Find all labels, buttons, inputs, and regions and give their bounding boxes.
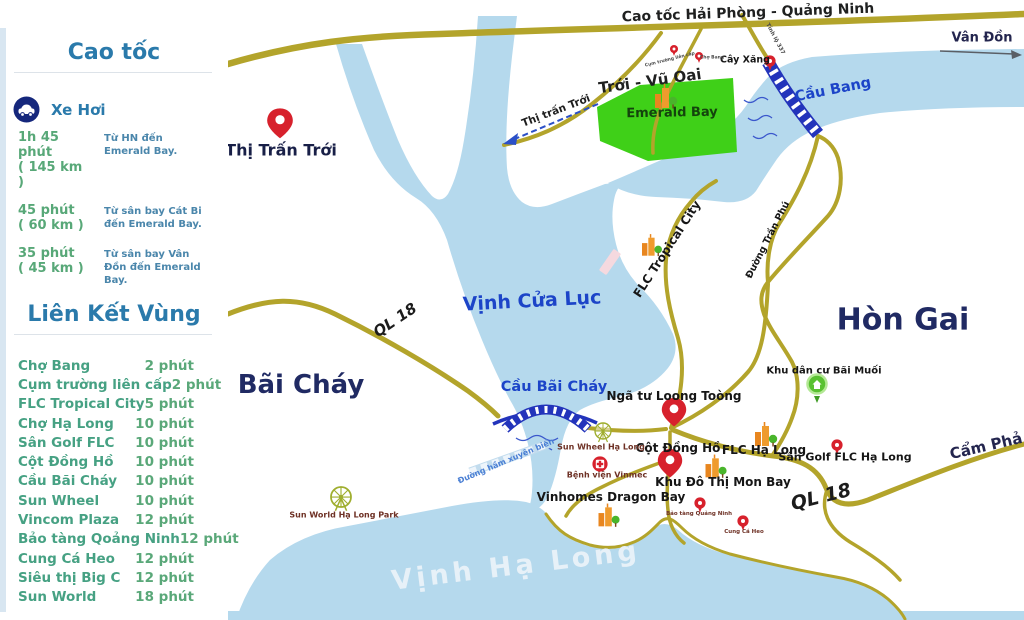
pin-thi-tran-troi <box>267 108 293 138</box>
region-link-name: Chợ Bang <box>18 358 90 374</box>
region-link-name: Cụm trường liên cấp <box>18 377 172 393</box>
region-link-time: 2 phút <box>145 358 194 374</box>
region-link-row: Cột Đồng Hồ10 phút <box>18 452 194 471</box>
region-link-row: Chợ Hạ Long10 phút <box>18 414 194 433</box>
house-pin-khu-dan-cu-bai-muoi <box>808 375 827 404</box>
region-link-row: Bảo tàng Qoảng Ninh12 phút <box>18 530 194 549</box>
region-link-row: FLC Tropical City5 phút <box>18 395 194 414</box>
region-link-time: 12 phút <box>180 531 239 547</box>
road-tran-phu-loop <box>768 136 841 282</box>
sidebar: Cao tốc Xe Hơi 1h 45 phút( 145 km )Từ HN… <box>0 0 228 620</box>
car-icon <box>13 96 40 123</box>
vinh-ha-long-water <box>236 500 906 620</box>
region-link-time: 2 phút <box>172 377 221 393</box>
trip-row: 35 phút( 45 km )Từ sân bay Vân Đồn đến E… <box>18 246 214 287</box>
road-loong-north <box>666 181 716 428</box>
region-link-time: 10 phút <box>135 454 194 470</box>
marker-san-golf <box>831 439 842 454</box>
pin-cot-dong-ho <box>658 449 682 478</box>
region-link-row: Chợ Bang2 phút <box>18 356 194 375</box>
car-mode-label: Xe Hơi <box>51 101 106 119</box>
divider <box>14 72 212 73</box>
trip-description: Từ HN đến Emerald Bay. <box>104 130 204 190</box>
region-link-name: Cung Cá Heo <box>18 551 115 567</box>
divider <box>14 334 212 335</box>
road-ql18-west <box>228 301 498 416</box>
region-link-row: Cụm trường liên cấp2 phút <box>18 375 194 394</box>
region-link-name: Cầu Bãi Cháy <box>18 473 117 489</box>
region-link-name: Chợ Hạ Long <box>18 416 114 432</box>
region-link-time: 10 phút <box>135 493 194 509</box>
buildings-flc-ha-long-icon <box>755 422 777 447</box>
marker-bao-tang-quang-ninh <box>694 497 705 512</box>
region-link-time: 10 phút <box>135 416 194 432</box>
location-map-page: Cao tốc Hải Phòng - Quảng NinhVân ĐồnTrớ… <box>0 0 1024 620</box>
region-link-time: 5 phút <box>145 396 194 412</box>
region-link-row: Sun Wheel10 phút <box>18 491 194 510</box>
region-link-time: 12 phút <box>135 512 194 528</box>
region-link-list: Chợ Bang2 phútCụm trường liên cấp2 phútF… <box>18 356 194 607</box>
region-link-name: Siêu thị Big C <box>18 570 120 586</box>
buildings-mon-bay-icon <box>706 455 727 478</box>
trip-time: 35 phút( 45 km ) <box>18 246 88 287</box>
hospital-vinmec-icon <box>592 456 607 471</box>
region-link-name: Sun Wheel <box>18 493 99 509</box>
marker-cum-truong <box>670 45 678 56</box>
car-mode-row: Xe Hơi <box>13 96 106 123</box>
trip-time: 1h 45 phút( 145 km ) <box>18 130 88 190</box>
region-link-row: Siêu thị Big C12 phút <box>18 568 194 587</box>
region-link-row: Sân Golf FLC10 phút <box>18 433 194 452</box>
marker-cung-ca-heo <box>737 515 748 530</box>
region-link-name: Bảo tàng Qoảng Ninh <box>18 531 180 547</box>
trip-list: 1h 45 phút( 145 km )Từ HN đến Emerald Ba… <box>18 130 214 300</box>
road-ql18-southeast <box>673 430 1024 504</box>
buildings-flc-tropical-icon <box>642 234 662 256</box>
region-link-name: Sun World <box>18 589 96 605</box>
trip-row: 45 phút( 60 km )Từ sân bay Cát Bi đến Em… <box>18 203 214 233</box>
highway-section-title: Cao tốc <box>0 40 228 65</box>
trip-row: 1h 45 phút( 145 km )Từ HN đến Emerald Ba… <box>18 130 214 190</box>
ferris-wheel-sun-wheel-icon <box>595 423 611 442</box>
region-link-time: 12 phút <box>135 570 194 586</box>
buildings-vinhomes-icon <box>599 504 620 527</box>
marker-cho-bang <box>695 52 703 63</box>
region-link-name: Cột Đồng Hồ <box>18 454 113 470</box>
region-link-name: FLC Tropical City <box>18 396 145 412</box>
region-link-name: Vincom Plaza <box>18 512 119 528</box>
links-section-title: Liên Kết Vùng <box>0 302 228 327</box>
region-link-time: 18 phút <box>135 589 194 605</box>
trip-time: 45 phút( 60 km ) <box>18 203 88 233</box>
region-link-time: 10 phút <box>135 435 194 451</box>
region-link-name: Sân Golf FLC <box>18 435 114 451</box>
region-link-row: Cầu Bãi Cháy10 phút <box>18 472 194 491</box>
vinh-cua-luc-water <box>336 16 676 510</box>
road-dragon-bay <box>566 460 668 516</box>
region-link-time: 12 phút <box>135 551 194 567</box>
trip-description: Từ sân bay Vân Đồn đến Emerald Bay. <box>104 246 204 287</box>
region-link-time: 10 phút <box>135 473 194 489</box>
region-link-row: Cung Cá Heo12 phút <box>18 549 194 568</box>
ferris-wheel-sun-world-icon <box>331 487 351 511</box>
region-link-row: Vincom Plaza12 phút <box>18 510 194 529</box>
region-link-row: Sun World18 phút <box>18 588 194 607</box>
trip-description: Từ sân bay Cát Bi đến Emerald Bay. <box>104 203 204 233</box>
